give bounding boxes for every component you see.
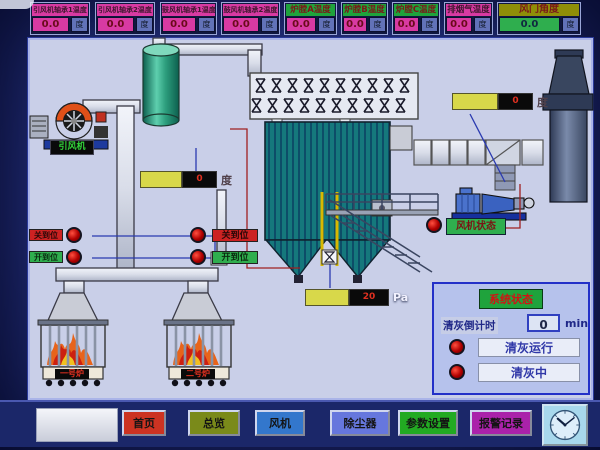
module-label: 炉膛B温度 <box>343 4 386 16</box>
module-value: 0.0 <box>162 17 196 32</box>
display-note <box>140 171 182 188</box>
nav-button-fan[interactable]: 风机 <box>255 410 305 436</box>
clean-countdown-label: 清灰倒计时 <box>441 317 498 334</box>
nav-button-home[interactable]: 首页 <box>122 410 166 436</box>
right-valve-closed-lamp <box>190 227 206 243</box>
nav-button-alarm-log[interactable]: 报警记录 <box>470 410 532 436</box>
module-value: 0.0 <box>32 17 69 32</box>
module-label: 鼓风机轴承1温度 <box>162 4 215 16</box>
outlet-temp-display: 0 度 <box>452 93 548 110</box>
display-note <box>305 289 349 306</box>
clock-widget <box>542 404 588 446</box>
module-unit: 度 <box>562 17 579 32</box>
screen-glare <box>0 0 34 9</box>
module-value: 0.0 <box>286 17 316 32</box>
module-unit: 度 <box>198 17 215 32</box>
module-value: 0.0 <box>446 17 472 32</box>
temp-module-8: 排烟气温度 0.0度 <box>444 2 493 35</box>
left-valve-closed-label: 关到位 <box>29 229 63 241</box>
fan-status-lamp <box>426 217 442 233</box>
module-label: 引风机轴承2温度 <box>97 4 153 16</box>
module-unit: 度 <box>136 17 153 32</box>
nav-button-dust-collector[interactable]: 除尘器 <box>330 410 390 436</box>
nav-button-settings[interactable]: 参数设置 <box>398 410 458 436</box>
display-note <box>452 93 498 110</box>
damper-angle-module: 风门角度 0.0度 <box>497 2 581 35</box>
temp-module-1: 引风机轴承1温度 0.0度 <box>30 2 90 35</box>
clean-running-label: 清灰运行 <box>478 338 580 357</box>
outlet-temp-unit: 度 <box>537 94 548 110</box>
module-label: 排烟气温度 <box>446 4 491 16</box>
cleaning-lamp <box>449 364 465 380</box>
temp-module-4: 鼓风机轴承2温度 0.0度 <box>221 2 280 35</box>
clock-icon <box>544 406 586 444</box>
temp-module-6: 炉膛B温度 0.0度 <box>341 2 388 35</box>
module-value: 0.0 <box>97 17 134 32</box>
module-unit: 度 <box>71 17 88 32</box>
left-valve-open-lamp <box>66 249 82 265</box>
left-valve-open-label: 开到位 <box>29 251 63 263</box>
pressure-unit: Pa <box>393 291 408 304</box>
module-unit: 度 <box>261 17 278 32</box>
temp-module-7: 炉膛C温度 0.0度 <box>392 2 440 35</box>
bottom-nav-bar: 首页 总览 风机 除尘器 参数设置 报警记录 <box>0 400 600 447</box>
module-label: 引风机轴承1温度 <box>32 4 88 16</box>
module-value: 0.0 <box>499 17 560 32</box>
blank-panel <box>36 408 118 442</box>
clean-countdown-value: 0 <box>527 314 560 332</box>
status-panel-title: 系统状态 <box>479 289 543 309</box>
module-unit: 度 <box>474 17 491 32</box>
module-label: 炉膛C温度 <box>394 4 438 16</box>
cleaning-label: 清灰中 <box>478 363 580 382</box>
fan-status-label: 风机状态 <box>446 218 506 235</box>
module-label: 鼓风机轴承2温度 <box>223 4 278 16</box>
system-status-panel: 系统状态 清灰倒计时 0 min 清灰运行 清灰中 <box>432 282 590 395</box>
nav-button-overview[interactable]: 总览 <box>188 410 240 436</box>
module-label: 炉膛A温度 <box>286 4 335 16</box>
temp-module-5: 炉膛A温度 0.0度 <box>284 2 337 35</box>
outlet-temp-value: 0 <box>498 93 533 110</box>
temp-module-2: 引风机轴承2温度 0.0度 <box>95 2 155 35</box>
module-unit: 度 <box>318 17 335 32</box>
module-unit: 度 <box>369 17 386 32</box>
temp-module-3: 鼓风机轴承1温度 0.0度 <box>160 2 217 35</box>
tank-temp-unit: 度 <box>221 172 232 188</box>
module-value: 0.0 <box>394 17 419 32</box>
left-valve-closed-lamp <box>66 227 82 243</box>
blower-label: 引风机 <box>50 140 94 155</box>
pressure-display: 20 Pa <box>305 289 408 306</box>
module-value: 0.0 <box>343 17 367 32</box>
furnace-1-label: 一号炉 <box>55 369 89 379</box>
tank-temp-display: 0 度 <box>140 171 232 188</box>
clean-running-lamp <box>449 339 465 355</box>
module-unit: 度 <box>421 17 438 32</box>
tank-temp-value: 0 <box>182 171 217 188</box>
module-label: 风门角度 <box>499 4 579 16</box>
right-valve-open-label: 开到位 <box>212 251 258 264</box>
pressure-value: 20 <box>349 289 389 306</box>
furnace-2-label: 二号炉 <box>181 369 215 379</box>
hmi-screen-photo: 引风机轴承1温度 0.0度 引风机轴承2温度 0.0度 鼓风机轴承1温度 0.0… <box>0 0 600 450</box>
right-valve-closed-label: 关到位 <box>212 229 258 242</box>
clean-countdown-unit: min <box>565 317 588 330</box>
right-valve-open-lamp <box>190 249 206 265</box>
module-value: 0.0 <box>223 17 259 32</box>
